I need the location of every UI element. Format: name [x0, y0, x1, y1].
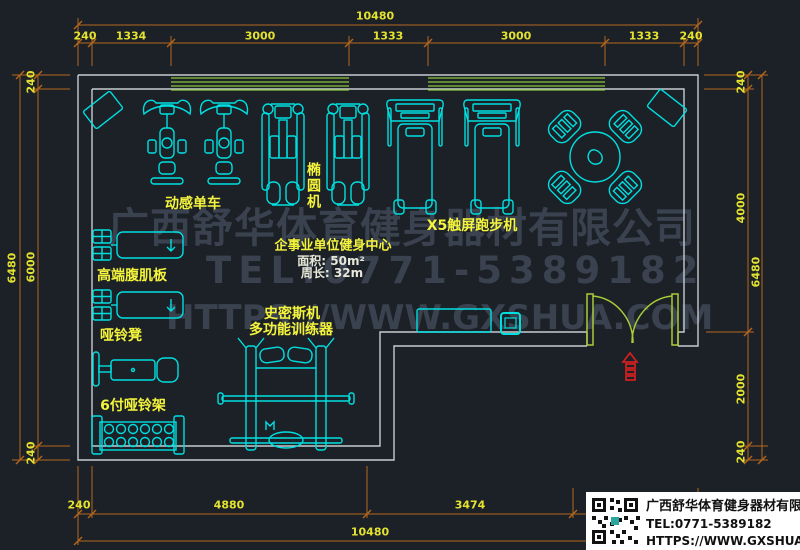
dim-top-seg-6: 1333 — [629, 31, 660, 42]
dim-top-seg-1: 240 — [74, 31, 97, 42]
dim-top-overall: 10480 — [356, 11, 394, 22]
dim-top-seg-7: 240 — [680, 31, 703, 42]
label-ab-board: 高端腹肌板 — [97, 269, 167, 283]
label-smith-machine-1: 史密斯机 — [264, 307, 320, 321]
dim-right-seg-2: 4000 — [736, 193, 747, 224]
dim-top-seg-3: 3000 — [245, 31, 276, 42]
label-dumbbell-bench: 哑铃凳 — [100, 329, 142, 343]
dim-top-seg-2: 1334 — [116, 31, 147, 42]
dim-bottom-seg-1: 240 — [68, 500, 91, 511]
dim-bottom-seg-3: 3474 — [455, 500, 486, 511]
qr-center-logo — [611, 517, 619, 525]
dim-left-seg-2: 6000 — [26, 252, 37, 283]
dim-left-seg-1: 240 — [26, 71, 37, 94]
label-spin-bike: 动感单车 — [165, 197, 221, 211]
room-title: 企事业单位健身中心 — [274, 240, 391, 253]
qr-code — [590, 496, 640, 546]
dim-right-seg-3: 2000 — [736, 374, 747, 405]
room-perimeter: 周长: 32m — [301, 267, 363, 279]
dim-top-seg-5: 3000 — [501, 31, 532, 42]
dim-bottom-overall: 10480 — [351, 527, 389, 538]
logo-tel: TEL:0771-5389182 — [646, 517, 800, 531]
label-treadmill: X5触屏跑步机 — [427, 219, 518, 233]
dim-right-seg-4: 240 — [736, 441, 747, 464]
dim-left-seg-3: 240 — [26, 442, 37, 465]
logo-url: HTTPS://WWW.GXSHUA.COM — [646, 534, 800, 548]
dim-left-overall: 6480 — [7, 253, 18, 284]
dim-top-seg-4: 1333 — [373, 31, 404, 42]
dim-right-seg-1: 240 — [736, 71, 747, 94]
logo-company-name: 广西舒华体育健身器材有限公司 — [646, 495, 800, 514]
cad-floorplan-view: 广西舒华体育健身器材有限公司 TEL:0771-5389182 HTTPS://… — [0, 0, 800, 550]
dim-bottom-seg-2: 4880 — [214, 500, 245, 511]
label-elliptical: 椭圆机 — [306, 162, 320, 210]
company-logo-panel: 广西舒华体育健身器材有限公司 TEL:0771-5389182 HTTPS://… — [586, 492, 800, 550]
label-dumbbell-rack: 6付哑铃架 — [100, 399, 166, 413]
annotation-layer: 10480 240 1334 3000 1333 3000 1333 240 6… — [0, 0, 800, 550]
label-smith-machine-2: 多功能训练器 — [249, 323, 333, 337]
dim-right-overall: 6480 — [751, 257, 762, 288]
